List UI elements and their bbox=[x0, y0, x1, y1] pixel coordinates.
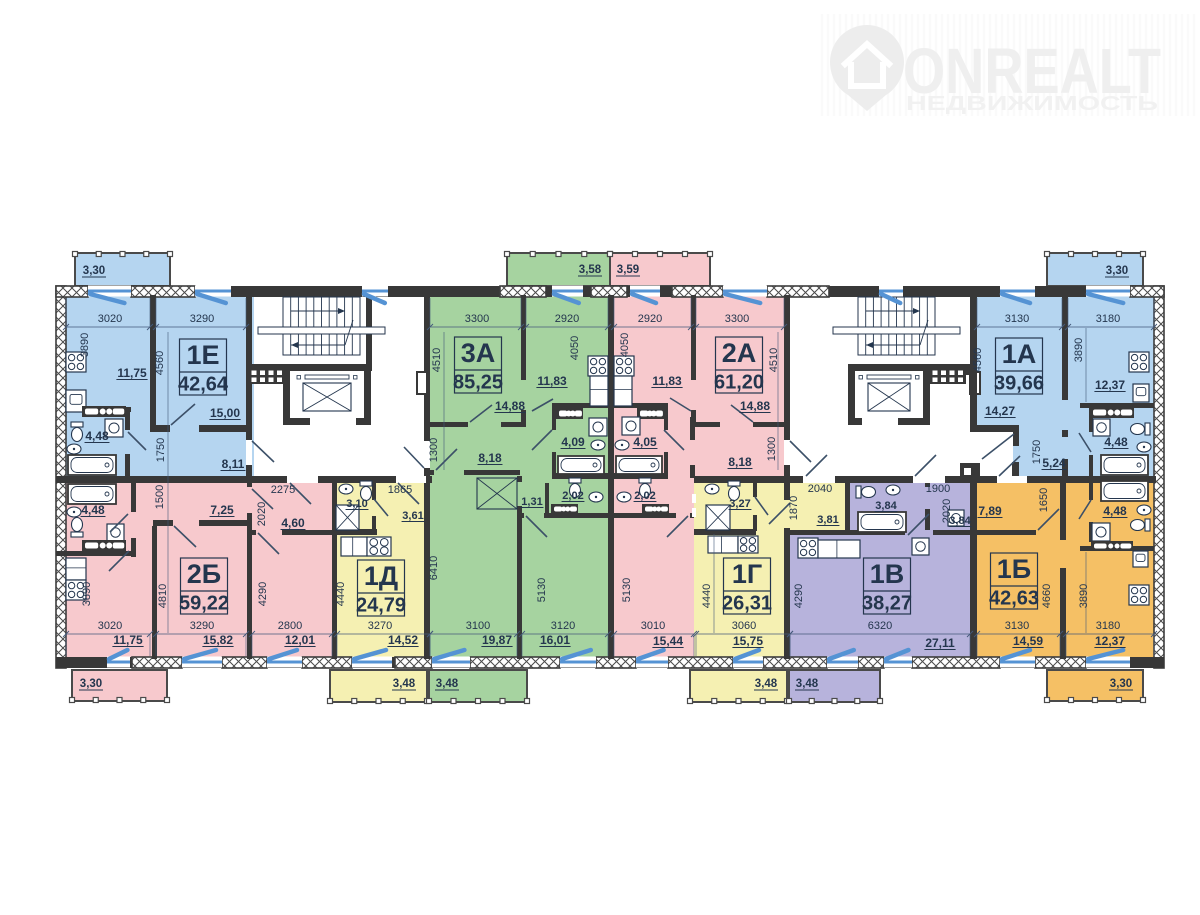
svg-text:1500: 1500 bbox=[154, 485, 166, 509]
svg-text:1650: 1650 bbox=[1038, 488, 1050, 512]
svg-text:3890: 3890 bbox=[1073, 338, 1085, 362]
svg-text:1Д: 1Д bbox=[364, 561, 398, 591]
svg-text:4,48: 4,48 bbox=[1104, 435, 1128, 449]
svg-text:3,84: 3,84 bbox=[875, 500, 897, 512]
svg-text:15,44: 15,44 bbox=[653, 634, 683, 648]
svg-text:3290: 3290 bbox=[190, 620, 214, 632]
svg-text:15,75: 15,75 bbox=[733, 634, 763, 648]
svg-text:15,00: 15,00 bbox=[210, 406, 240, 420]
svg-text:2275: 2275 bbox=[271, 484, 295, 496]
svg-text:3,58: 3,58 bbox=[579, 264, 602, 276]
svg-text:42,63: 42,63 bbox=[989, 588, 1039, 610]
svg-text:24,79: 24,79 bbox=[356, 595, 406, 617]
svg-text:8,18: 8,18 bbox=[478, 451, 502, 465]
svg-text:1900: 1900 bbox=[926, 483, 950, 495]
svg-text:4050: 4050 bbox=[619, 333, 631, 357]
svg-text:4290: 4290 bbox=[257, 582, 269, 606]
svg-text:3,10: 3,10 bbox=[346, 498, 367, 510]
svg-text:НЕДВИЖИМОСТЬ: НЕДВИЖИМОСТЬ bbox=[906, 93, 1158, 115]
svg-text:3060: 3060 bbox=[732, 620, 756, 632]
svg-text:1Е: 1Е bbox=[186, 340, 219, 370]
svg-text:4290: 4290 bbox=[793, 584, 805, 608]
svg-text:3А: 3А bbox=[461, 338, 496, 368]
svg-text:3300: 3300 bbox=[725, 313, 749, 325]
svg-text:3,30: 3,30 bbox=[1106, 265, 1128, 277]
svg-text:59,22: 59,22 bbox=[179, 593, 229, 615]
svg-text:7,25: 7,25 bbox=[210, 503, 234, 517]
svg-text:3,61: 3,61 bbox=[402, 510, 423, 522]
svg-text:3180: 3180 bbox=[1096, 620, 1120, 632]
svg-text:4660: 4660 bbox=[1041, 584, 1053, 608]
svg-text:3,84: 3,84 bbox=[949, 515, 971, 527]
svg-text:61,20: 61,20 bbox=[714, 372, 764, 394]
svg-text:11,83: 11,83 bbox=[652, 374, 682, 388]
svg-text:1Г: 1Г bbox=[732, 559, 762, 589]
svg-text:4440: 4440 bbox=[701, 584, 713, 608]
svg-text:4,60: 4,60 bbox=[281, 516, 305, 530]
svg-text:4510: 4510 bbox=[431, 348, 443, 372]
svg-text:3,81: 3,81 bbox=[817, 514, 838, 526]
svg-text:4,05: 4,05 bbox=[633, 435, 657, 449]
svg-text:3100: 3100 bbox=[466, 620, 490, 632]
svg-text:3890: 3890 bbox=[1078, 584, 1090, 608]
svg-text:3,30: 3,30 bbox=[80, 678, 102, 690]
svg-text:2Б: 2Б bbox=[187, 559, 221, 589]
svg-text:2800: 2800 bbox=[278, 620, 302, 632]
svg-text:1300: 1300 bbox=[428, 438, 440, 462]
svg-text:3020: 3020 bbox=[98, 620, 122, 632]
svg-text:2,02: 2,02 bbox=[562, 490, 583, 502]
svg-text:4560: 4560 bbox=[154, 351, 166, 375]
svg-text:1Б: 1Б bbox=[997, 554, 1031, 584]
svg-text:4,09: 4,09 bbox=[561, 435, 585, 449]
svg-text:4440: 4440 bbox=[335, 582, 347, 606]
svg-text:4050: 4050 bbox=[569, 336, 581, 360]
svg-text:2040: 2040 bbox=[808, 483, 832, 495]
svg-text:3,48: 3,48 bbox=[436, 678, 459, 690]
svg-text:15,82: 15,82 bbox=[203, 633, 233, 647]
svg-text:3130: 3130 bbox=[1005, 620, 1029, 632]
svg-text:5130: 5130 bbox=[621, 578, 633, 602]
svg-text:19,87: 19,87 bbox=[482, 633, 512, 647]
svg-text:3020: 3020 bbox=[98, 313, 122, 325]
svg-text:3270: 3270 bbox=[368, 620, 392, 632]
svg-text:4,48: 4,48 bbox=[1103, 504, 1127, 518]
svg-text:85,25: 85,25 bbox=[453, 372, 503, 394]
svg-text:5,24: 5,24 bbox=[1042, 456, 1066, 470]
svg-text:2А: 2А bbox=[722, 338, 757, 368]
svg-text:12,37: 12,37 bbox=[1095, 378, 1125, 392]
svg-text:2920: 2920 bbox=[555, 313, 579, 325]
svg-text:4560: 4560 bbox=[972, 348, 984, 372]
svg-text:14,59: 14,59 bbox=[1013, 634, 1043, 648]
svg-text:14,27: 14,27 bbox=[985, 404, 1015, 418]
svg-text:3,27: 3,27 bbox=[729, 498, 750, 510]
svg-text:7,89: 7,89 bbox=[978, 504, 1002, 518]
svg-text:1750: 1750 bbox=[1031, 440, 1043, 464]
svg-text:3,30: 3,30 bbox=[83, 265, 105, 277]
svg-text:3300: 3300 bbox=[465, 313, 489, 325]
svg-text:27,11: 27,11 bbox=[925, 636, 955, 650]
svg-text:1А: 1А bbox=[1002, 339, 1037, 369]
svg-text:12,01: 12,01 bbox=[285, 633, 315, 647]
svg-text:6410: 6410 bbox=[428, 556, 440, 580]
svg-text:1В: 1В bbox=[870, 559, 905, 589]
svg-text:3130: 3130 bbox=[1005, 313, 1029, 325]
svg-text:11,75: 11,75 bbox=[117, 366, 147, 380]
svg-text:3890: 3890 bbox=[79, 333, 91, 357]
svg-text:3120: 3120 bbox=[551, 620, 575, 632]
svg-text:4,48: 4,48 bbox=[85, 429, 109, 443]
svg-text:3180: 3180 bbox=[1096, 313, 1120, 325]
svg-text:11,75: 11,75 bbox=[113, 633, 143, 647]
svg-text:2920: 2920 bbox=[638, 313, 662, 325]
svg-text:14,88: 14,88 bbox=[495, 399, 525, 413]
svg-text:1870: 1870 bbox=[788, 496, 800, 520]
svg-text:3890: 3890 bbox=[81, 582, 93, 606]
svg-text:14,52: 14,52 bbox=[388, 633, 418, 647]
svg-text:1865: 1865 bbox=[388, 484, 412, 496]
svg-text:3,30: 3,30 bbox=[1110, 678, 1132, 690]
svg-text:1750: 1750 bbox=[155, 438, 167, 462]
svg-text:16,01: 16,01 bbox=[540, 633, 570, 647]
svg-text:4,48: 4,48 bbox=[81, 503, 105, 517]
svg-text:39,66: 39,66 bbox=[994, 373, 1044, 395]
svg-text:1,31: 1,31 bbox=[521, 496, 542, 508]
svg-text:3,48: 3,48 bbox=[796, 678, 819, 690]
svg-text:11,83: 11,83 bbox=[537, 374, 567, 388]
svg-text:6320: 6320 bbox=[868, 620, 892, 632]
svg-text:2,02: 2,02 bbox=[634, 490, 655, 502]
svg-text:3290: 3290 bbox=[190, 313, 214, 325]
svg-text:4810: 4810 bbox=[157, 584, 169, 608]
svg-text:26,31: 26,31 bbox=[722, 593, 772, 615]
svg-text:38,27: 38,27 bbox=[862, 593, 912, 615]
svg-text:3,48: 3,48 bbox=[393, 678, 416, 690]
svg-text:2020: 2020 bbox=[256, 502, 268, 526]
svg-text:1300: 1300 bbox=[766, 437, 778, 461]
svg-text:8,18: 8,18 bbox=[728, 455, 752, 469]
svg-text:3,59: 3,59 bbox=[617, 264, 639, 276]
svg-text:12,37: 12,37 bbox=[1095, 634, 1125, 648]
svg-text:3,48: 3,48 bbox=[755, 678, 778, 690]
svg-text:42,64: 42,64 bbox=[178, 374, 229, 396]
svg-text:5130: 5130 bbox=[536, 578, 548, 602]
svg-text:8,11: 8,11 bbox=[222, 457, 245, 471]
svg-text:3010: 3010 bbox=[641, 620, 665, 632]
svg-text:14,88: 14,88 bbox=[740, 399, 770, 413]
